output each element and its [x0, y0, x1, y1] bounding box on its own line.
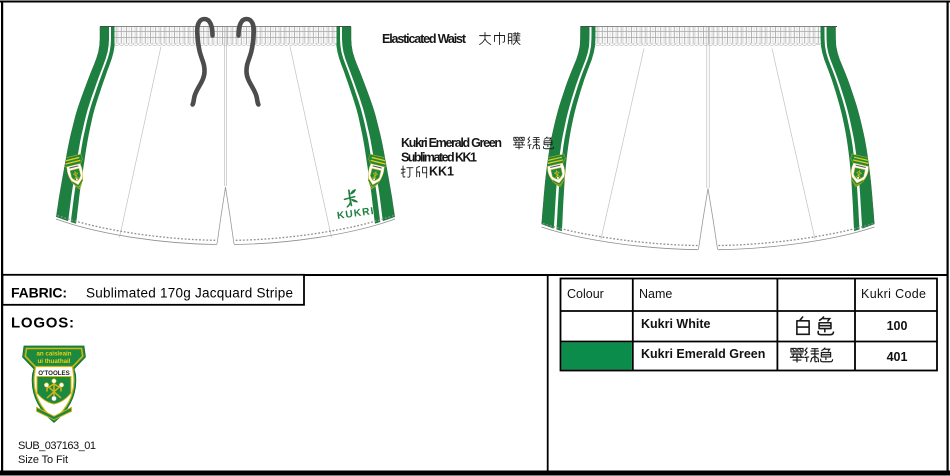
svg-text:Sublimated KK1: Sublimated KK1: [401, 151, 477, 165]
svg-text:Size To Fit: Size To Fit: [18, 454, 68, 466]
svg-text:Kukri Code: Kukri Code: [861, 287, 926, 301]
svg-text:Sublimated 170g Jacquard Strip: Sublimated 170g Jacquard Stripe: [86, 286, 293, 301]
svg-text:Kukri Emerald Green: Kukri Emerald Green: [641, 347, 765, 361]
svg-text:Colour: Colour: [567, 287, 604, 301]
svg-text:100: 100: [887, 319, 908, 333]
svg-text:Name: Name: [639, 287, 672, 301]
svg-text:Kukri White: Kukri White: [641, 317, 710, 331]
svg-text:401: 401: [887, 350, 908, 364]
svg-text:KK1: KK1: [429, 165, 454, 179]
svg-text:LOGOS:: LOGOS:: [11, 315, 74, 332]
svg-text:SUB_037163_01: SUB_037163_01: [18, 440, 96, 452]
svg-text:Elasticated Waist: Elasticated Waist: [382, 32, 467, 46]
svg-text:Kukri Emerald Green: Kukri Emerald Green: [401, 136, 502, 150]
svg-text:FABRIC:: FABRIC:: [11, 285, 67, 301]
